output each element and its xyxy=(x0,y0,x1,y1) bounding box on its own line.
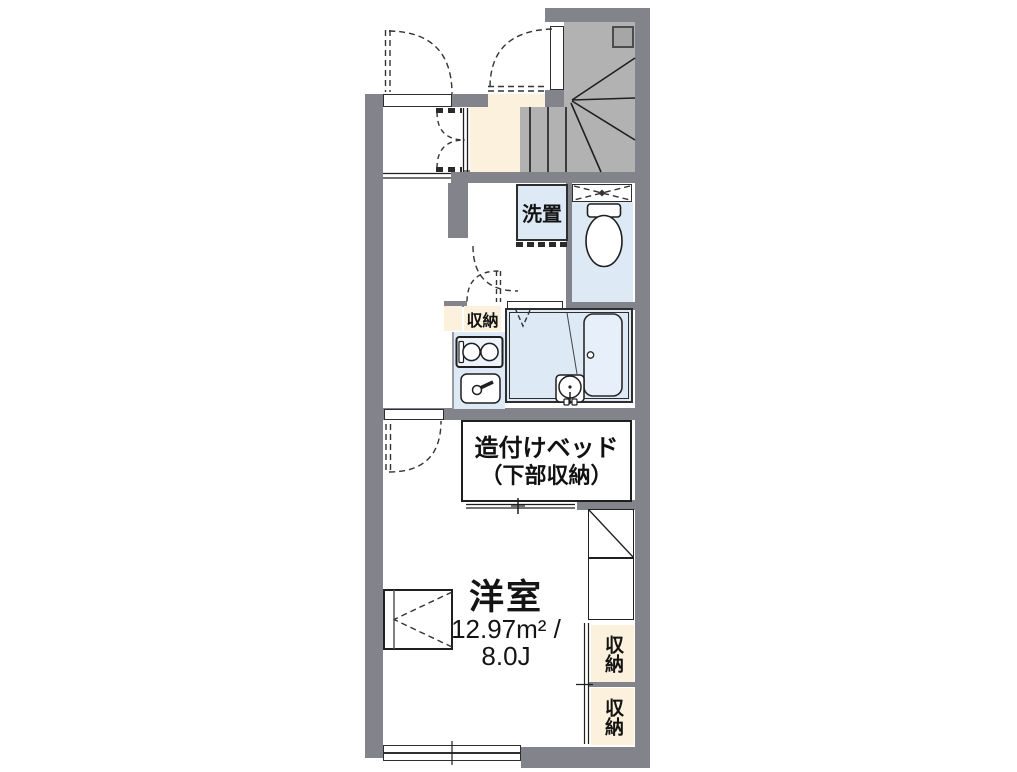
entrance-area xyxy=(470,107,520,172)
toilet-vent-window xyxy=(572,184,632,202)
main-room-door-leaf xyxy=(384,409,444,420)
storage-right-top-label: 収納 xyxy=(591,625,634,682)
counter-box-diagonal xyxy=(588,509,634,558)
kitchen-storage-label: 収納 xyxy=(464,306,501,331)
bottom-window-rail-2 xyxy=(383,753,521,761)
bathroom xyxy=(505,308,633,403)
bathroom-inner-frame xyxy=(509,312,629,399)
bed-label-line2: （下部収納） xyxy=(480,463,612,490)
wall-left xyxy=(365,94,383,758)
kitchen-storage-door-swing xyxy=(467,271,501,302)
bath-folding-door-bar xyxy=(507,301,563,309)
wall-right xyxy=(635,8,650,768)
kitchen-unit xyxy=(452,332,505,409)
main-room-door-swing xyxy=(386,421,441,472)
wall-strip-between-storage xyxy=(589,682,635,687)
stair-landing-square xyxy=(612,26,634,48)
washroom-door-swing xyxy=(473,245,568,292)
storage-right-bottom-label: 収納 xyxy=(591,688,634,745)
room-area-m2: 12.97m² / xyxy=(426,616,586,643)
wall-bottom xyxy=(521,747,650,768)
counter-box-plain xyxy=(588,558,634,620)
wall-stub-washer-nook xyxy=(448,183,468,238)
top-left-door-leaf xyxy=(383,94,452,107)
room-area-jo: 8.0J xyxy=(426,643,586,670)
kitchen-side-storage-small xyxy=(444,306,462,331)
stairs-lower-area xyxy=(520,107,635,172)
floor-plan: 洗置 収納 造付けベッド （下部収納） 洋室 12.97m² / 8.0J 収納… xyxy=(0,0,1017,772)
washer-label: 洗置 xyxy=(516,184,568,241)
bed-label-line1: 造付けベッド xyxy=(475,434,619,463)
room-name: 洋室 xyxy=(426,572,586,616)
entry-door-leaf xyxy=(550,26,564,90)
bottom-window-rail-1 xyxy=(383,745,521,753)
top-left-door-swing xyxy=(386,30,453,94)
bed-label: 造付けベッド （下部収納） xyxy=(462,426,631,498)
entrance-doorway xyxy=(488,94,545,107)
shoe-closet-area xyxy=(383,107,463,172)
toilet-room xyxy=(572,202,633,302)
entry-door-swing xyxy=(488,29,552,91)
